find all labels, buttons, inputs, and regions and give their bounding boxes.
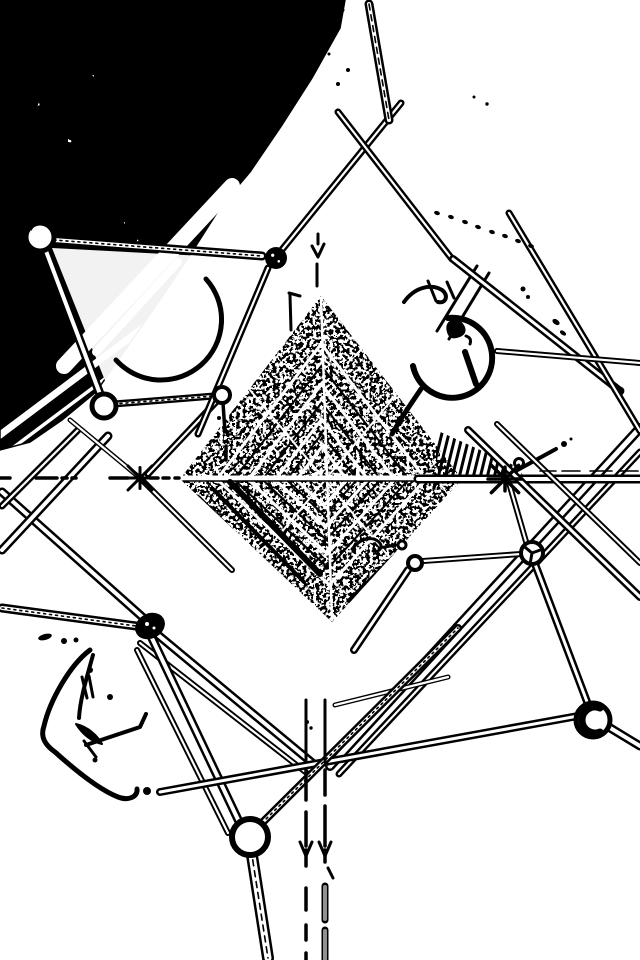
node-ring — [398, 541, 406, 549]
ring-blob — [447, 320, 464, 337]
node-ring — [92, 394, 116, 418]
node-blob — [265, 247, 287, 269]
speck — [87, 667, 93, 673]
speck-oval — [501, 233, 508, 239]
speck — [309, 726, 312, 729]
speck — [93, 758, 98, 763]
speck — [143, 787, 151, 795]
speck-oval — [514, 238, 521, 244]
bl-tick-b — [89, 676, 93, 697]
ring-rod — [465, 352, 476, 384]
speck — [217, 416, 221, 420]
speck-oval — [488, 229, 495, 235]
speck — [473, 96, 476, 99]
node-ring — [214, 387, 230, 403]
speck-oval — [559, 329, 567, 336]
speck-oval — [551, 318, 560, 327]
speck — [107, 694, 113, 700]
node-ring — [232, 819, 268, 855]
flag-mark — [289, 293, 300, 330]
speck-oval — [474, 224, 481, 230]
speck — [521, 287, 526, 292]
speck — [570, 438, 573, 441]
speck — [526, 295, 530, 299]
hook-claw-a — [404, 287, 446, 302]
speck — [336, 82, 340, 86]
speck-oval — [447, 214, 454, 220]
speck — [305, 720, 309, 724]
ring-rod-b — [447, 282, 454, 298]
apex-arrow — [312, 234, 324, 286]
speck — [61, 638, 67, 644]
speck-oval — [461, 219, 468, 225]
speck-oval — [433, 210, 440, 216]
speck — [328, 53, 331, 56]
bl-zig — [86, 714, 146, 745]
speck-oval — [37, 632, 52, 641]
hook-spike — [428, 281, 436, 301]
ring-blob-b — [466, 336, 471, 344]
speck — [485, 102, 488, 105]
edge-detected-pylon-photo — [0, 0, 640, 960]
speck — [74, 638, 79, 643]
node-ring — [408, 556, 422, 570]
speck — [346, 68, 350, 72]
line-art-canvas — [0, 0, 640, 960]
speck — [561, 441, 567, 447]
